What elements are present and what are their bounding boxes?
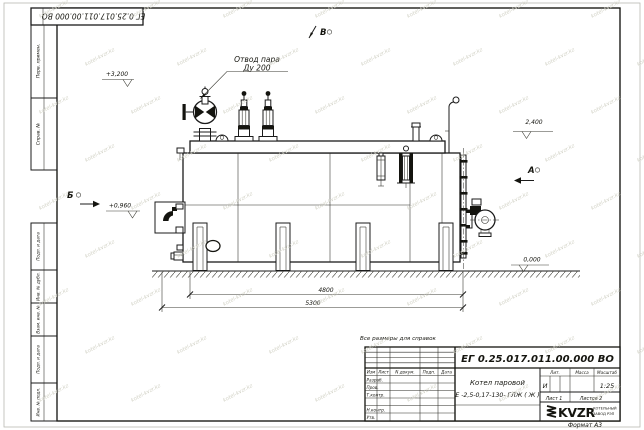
top-doc-number: ЕГ 0.25.017.011.00.000 ВО — [42, 12, 146, 21]
row-nkontr: Н.контр. — [367, 408, 386, 413]
dim-5300-label: 5300 — [305, 300, 320, 307]
ground-hatch — [152, 271, 580, 278]
reference-note: Все размеры для справок — [360, 336, 437, 342]
scale-label: Масштаб — [597, 370, 617, 375]
elev-3200-label: +3,200 — [106, 71, 128, 78]
view-b-label: Б — [67, 191, 74, 201]
side-cell-sprav: Справ. № — [36, 123, 42, 146]
support-leg-2 — [276, 223, 290, 271]
product-model: Е -2,5-0,17-130- ГЛЖ ( Ж ) — [455, 392, 539, 399]
top-pipe-fitting — [411, 123, 421, 141]
support-leg-3 — [356, 223, 370, 271]
drawing-sheet: ЕГ 0.25.017.011.00.000 ВО Перв. примен. … — [0, 0, 644, 430]
col-izm: Изм — [367, 370, 376, 375]
col-data: Дата — [440, 370, 452, 375]
callout-line2: Ду 200 — [243, 64, 271, 73]
title-block: Изм Лист N докум. Подп. Дата Разраб. Про… — [365, 347, 620, 421]
support-leg-4 — [439, 223, 453, 271]
sheet-number: Лист 1 — [545, 396, 563, 402]
row-prov: Пров. — [367, 385, 379, 390]
col-ndoc: N докум. — [395, 370, 414, 375]
title-doc-number: ЕГ 0.25.017.011.00.000 ВО — [461, 354, 614, 365]
manhole-oval — [206, 241, 220, 252]
top-doc-number-box: ЕГ 0.25.017.011.00.000 ВО — [31, 8, 145, 25]
side-cell-inv-dubl: Инв. № дубл. — [36, 272, 41, 301]
gost-drawing-svg: ЕГ 0.25.017.011.00.000 ВО Перв. примен. … — [0, 0, 644, 430]
side-cell-perv-primen: Перв. примен. — [36, 44, 42, 79]
scale-value: 1:25 — [600, 382, 615, 390]
row-razrab: Разраб. — [367, 378, 383, 383]
elev-0960-label: +0,960 — [109, 203, 131, 210]
row-tkontr: Т.контр. — [367, 393, 385, 398]
view-a-label: А — [527, 166, 535, 176]
dim-4800-label: 4800 — [318, 287, 333, 294]
elev-2400-label: 2,400 — [525, 119, 542, 126]
side-cell-vzam-inv: Взам. инв. № — [36, 305, 41, 334]
row-utv: Утв. — [367, 415, 376, 420]
elev-0000-label: 0,000 — [523, 257, 540, 264]
format-label: Формат А3 — [568, 422, 602, 429]
side-cell-podp-data-1: Подп. и дата — [36, 232, 41, 261]
logo-sub2: ЗАВОД РЭП — [593, 412, 615, 416]
lit-label: Лит. — [549, 370, 560, 375]
support-leg-1 — [193, 223, 207, 271]
logo-sub1: КОТЕЛЬНЫЙ — [593, 406, 617, 411]
boiler-shell — [183, 153, 460, 262]
mass-label: Масса — [575, 370, 589, 375]
col-list: Лист — [377, 370, 389, 375]
logo-text: KVZR — [558, 405, 596, 420]
sheets-total: Листов 2 — [579, 396, 603, 402]
product-name: Котел паровой — [470, 379, 525, 387]
side-cell-podp-data-2: Подп. и дата — [36, 345, 41, 374]
view-v-label: В — [320, 28, 326, 38]
col-podp: Подп. — [423, 370, 436, 375]
side-cell-inv-podl: Инв. № подл. — [36, 388, 41, 417]
lit-value: И — [543, 382, 548, 390]
